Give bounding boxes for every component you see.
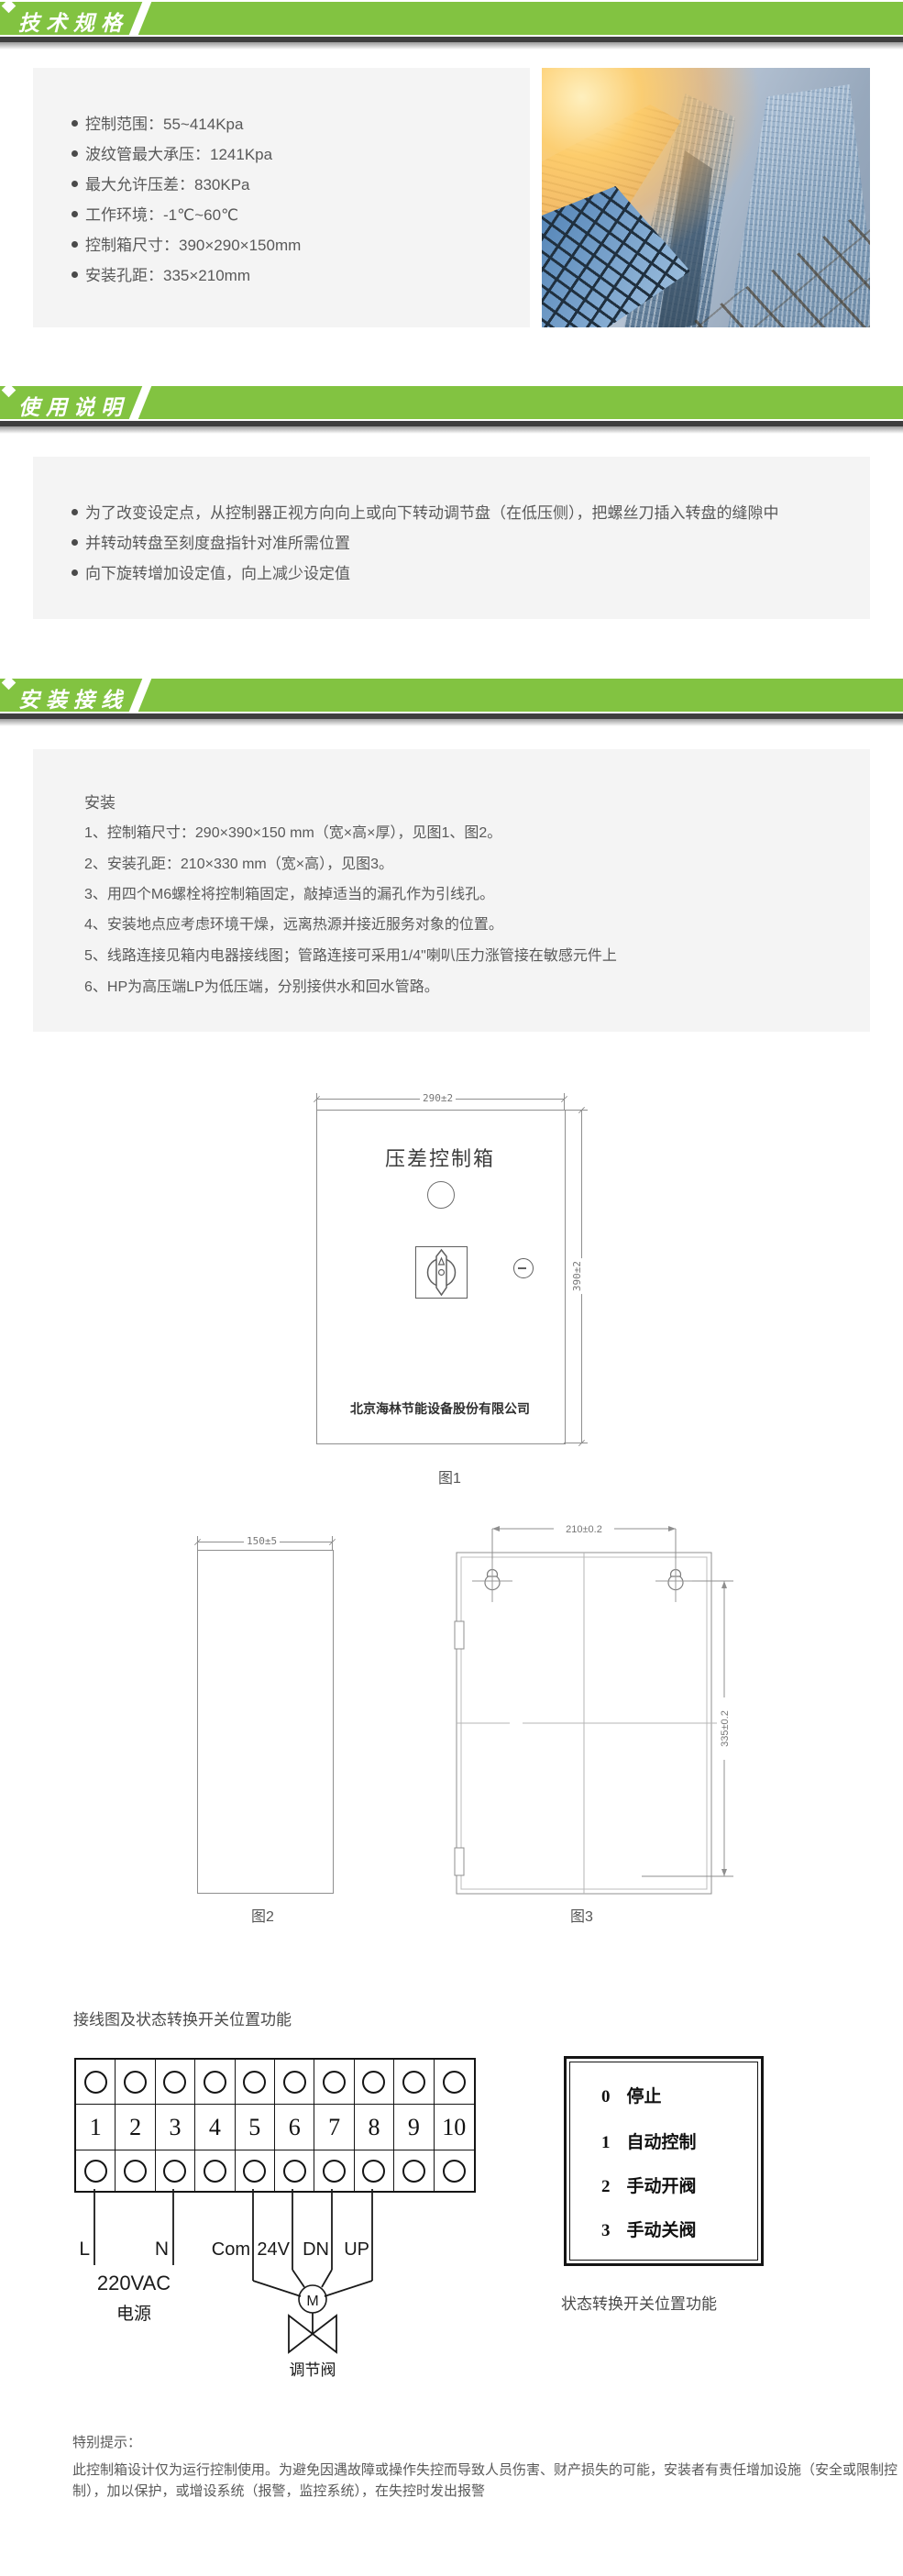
label-up: UP (344, 2239, 369, 2260)
fig1-lock-icon (513, 1258, 534, 1278)
terminal-screw (314, 2060, 354, 2105)
bullet-icon (72, 211, 78, 217)
spec-text: 控制范围：55~414Kpa (85, 116, 243, 133)
fig1-height-dim: 390±2 (571, 1258, 583, 1294)
terminal-screw (355, 2150, 394, 2191)
terminal-screw (116, 2150, 155, 2191)
notice-line: 制），加以保护，或增设系统（报警，监控系统），在失控时发出报警 (72, 2481, 485, 2500)
diamond-icon (2, 676, 17, 691)
fig1-caption: 图1 (438, 1465, 461, 1487)
screw-icon (204, 2071, 226, 2094)
install-step: 2、安装孔距：210×330 mm（宽×高），见图3。 (84, 851, 393, 873)
terminal-number: 2 (116, 2105, 155, 2150)
terminal-screw (394, 2060, 434, 2105)
screw-icon (163, 2160, 186, 2183)
diamond-icon (2, 0, 17, 13)
label-com: Com (212, 2239, 250, 2260)
usage-text: 并转动转盘至刻度盘指针对准所需位置 (85, 535, 350, 552)
section-header-usage: 使用说明 (0, 386, 903, 419)
screw-icon (443, 2160, 466, 2183)
header-shadow (0, 426, 903, 434)
wiring-heading: 接线图及状态转换开关位置功能 (73, 2007, 292, 2029)
dim-extension (197, 1536, 198, 1550)
switch-position-item: 0停止 (601, 2083, 662, 2107)
label-valve: 调节阀 (290, 2361, 336, 2379)
dim-extension (564, 1443, 588, 1443)
switch-position-caption: 状态转换开关位置功能 (561, 2291, 717, 2314)
terminal-screw (275, 2150, 314, 2191)
terminal-number: 7 (314, 2105, 354, 2150)
label-neutral: N (155, 2239, 169, 2260)
fig1-panel-label: 压差控制箱 (316, 1143, 564, 1172)
terminal-screw (394, 2150, 434, 2191)
terminal-screw (195, 2150, 235, 2191)
label-dn: DN (303, 2239, 329, 2260)
terminal-screw (435, 2150, 474, 2191)
notice-line: 此控制箱设计仅为运行控制使用。为避免因遇故障或操作失控而导致人员伤害、财产损失的… (72, 2460, 897, 2479)
label-voltage: 220VAC (97, 2272, 171, 2294)
spec-text: 控制箱尺寸：390×290×150mm (85, 237, 301, 254)
bullet-icon (72, 509, 78, 515)
spec-item: 控制范围：55~414Kpa (72, 111, 243, 134)
terminal-screw (236, 2150, 275, 2191)
spec-text: 安装孔距：335×210mm (85, 267, 250, 284)
bullet-icon (72, 150, 78, 157)
fig1-width-dim: 290±2 (420, 1092, 456, 1104)
slash-decoration (129, 679, 152, 712)
screw-icon (84, 2160, 107, 2183)
fig2-caption: 图2 (251, 1904, 274, 1926)
terminal-number: 3 (156, 2105, 195, 2150)
usage-item: 向下旋转增加设定值，向上减少设定值 (72, 560, 350, 583)
terminal-block: 1 2 3 4 5 6 7 8 9 10 (74, 2058, 476, 2193)
label-power: 电源 (116, 2304, 151, 2324)
terminal-number: 8 (355, 2105, 394, 2150)
usage-text: 为了改变设定点，从控制器正视方向向上或向下转动调节盘（在低压侧），把螺丝刀插入转… (85, 504, 779, 522)
dim-extension (332, 1536, 333, 1550)
screw-icon (84, 2071, 107, 2094)
terminal-screw (76, 2150, 116, 2191)
screw-icon (124, 2160, 147, 2183)
screw-icon (283, 2160, 306, 2183)
fig1-dial-circle (427, 1181, 455, 1209)
motor-symbol: M (306, 2294, 318, 2309)
terminal-screw (116, 2060, 155, 2105)
spec-item: 最大允许压差：830KPa (72, 171, 250, 194)
screw-icon (362, 2160, 385, 2183)
fig2-width-dim: 150±5 (244, 1535, 280, 1547)
terminal-screw (236, 2060, 275, 2105)
page: 技术规格 控制范围：55~414Kpa 波纹管最大承压：1241Kpa 最大允许… (0, 0, 903, 2576)
bullet-icon (72, 241, 78, 248)
screw-icon (283, 2071, 306, 2094)
install-step: 6、HP为高压端LP为低压端，分别接供水和回水管路。 (84, 974, 439, 996)
screw-icon (402, 2160, 425, 2183)
section-title-usage: 使用说明 (18, 390, 128, 421)
notice-title: 特别提示： (72, 2432, 141, 2451)
header-shadow (0, 42, 903, 50)
fig2-enclosure-outline (197, 1550, 334, 1894)
screw-icon (124, 2071, 147, 2094)
slash-decoration (129, 386, 152, 419)
screw-icon (323, 2071, 346, 2094)
screw-icon (243, 2071, 266, 2094)
install-subtitle: 安装 (84, 790, 116, 813)
terminal-screw (156, 2060, 195, 2105)
switch-position-item: 3手动关阀 (601, 2217, 697, 2241)
switch-position-item: 1自动控制 (601, 2128, 697, 2153)
section-header-specs: 技术规格 (0, 2, 903, 35)
switch-position-box: 0停止 1自动控制 2手动开阀 3手动关阀 (564, 2056, 764, 2266)
screw-icon (402, 2071, 425, 2094)
diamond-icon (2, 383, 17, 398)
terminal-screw (195, 2060, 235, 2105)
terminal-number: 4 (195, 2105, 235, 2150)
usage-item: 为了改变设定点，从控制器正视方向向上或向下转动调节盘（在低压侧），把螺丝刀插入转… (72, 500, 779, 523)
fig3-drawing: 210±0.2 335±0.2 (447, 1518, 750, 1903)
header-shadow (0, 719, 903, 726)
screw-icon (443, 2071, 466, 2094)
bullet-icon (72, 569, 78, 576)
bullet-icon (72, 271, 78, 278)
rotary-knob-icon (416, 1247, 467, 1298)
terminal-number: 5 (236, 2105, 275, 2150)
dim-extension (564, 1110, 588, 1111)
terminal-number: 10 (435, 2105, 474, 2150)
fig1-rotary-switch (415, 1246, 468, 1299)
install-step: 3、用四个M6螺栓将控制箱固定，敲掉适当的漏孔作为引线孔。 (84, 881, 494, 903)
fig1-company-name: 北京海林节能设备股份有限公司 (316, 1399, 564, 1418)
terminal-screw (314, 2150, 354, 2191)
dim-extension (564, 1093, 565, 1110)
slash-decoration (129, 2, 152, 35)
terminal-number: 9 (394, 2105, 434, 2150)
terminal-screw (76, 2060, 116, 2105)
screw-icon (243, 2160, 266, 2183)
section-title-specs: 技术规格 (18, 6, 128, 37)
label-line: L (79, 2239, 90, 2260)
spec-text: 工作环境：-1℃~60℃ (85, 206, 238, 224)
bullet-icon (72, 539, 78, 546)
spec-item: 工作环境：-1℃~60℃ (72, 202, 238, 225)
screw-icon (163, 2071, 186, 2094)
switch-position-item: 2手动开阀 (601, 2172, 697, 2197)
section-header-install: 安装接线 (0, 679, 903, 712)
usage-text: 向下旋转增加设定值，向上减少设定值 (85, 565, 350, 582)
install-step: 5、线路连接见箱内电器接线图；管路连接可采用1/4"喇叭压力涨管接在敏感元件上 (84, 943, 617, 965)
spec-item: 控制箱尺寸：390×290×150mm (72, 232, 301, 255)
usage-item: 并转动转盘至刻度盘指针对准所需位置 (72, 530, 350, 553)
screw-icon (204, 2160, 226, 2183)
spec-item: 波纹管最大承压：1241Kpa (72, 141, 272, 164)
spec-item: 安装孔距：335×210mm (72, 262, 250, 285)
wiring-diagram: L N Com 24V DN UP 220VAC 电源 M 调节阀 (55, 2189, 477, 2395)
terminal-screw (435, 2060, 474, 2105)
fig3-height-dim: 335±0.2 (720, 1710, 731, 1747)
fig3-caption: 图3 (570, 1904, 593, 1926)
bullet-icon (72, 181, 78, 187)
dim-extension (316, 1093, 317, 1110)
spec-text: 波纹管最大承压：1241Kpa (85, 146, 272, 163)
terminal-number: 6 (275, 2105, 314, 2150)
install-step: 4、安装地点应考虑环境干燥，远离热源并接近服务对象的位置。 (84, 912, 503, 934)
terminal-screw (275, 2060, 314, 2105)
building-photo (542, 68, 870, 327)
screw-icon (323, 2160, 346, 2183)
terminal-number: 1 (76, 2105, 116, 2150)
bullet-icon (72, 120, 78, 127)
fig3-width-dim: 210±0.2 (566, 1524, 602, 1535)
screw-icon (362, 2071, 385, 2094)
section-title-install: 安装接线 (18, 682, 128, 713)
terminal-screw (355, 2060, 394, 2105)
label-24v: 24V (257, 2239, 290, 2260)
spec-text: 最大允许压差：830KPa (85, 176, 250, 193)
install-step: 1、控制箱尺寸：290×390×150 mm（宽×高×厚），见图1、图2。 (84, 820, 501, 842)
terminal-screw (156, 2150, 195, 2191)
specs-panel (33, 68, 530, 327)
